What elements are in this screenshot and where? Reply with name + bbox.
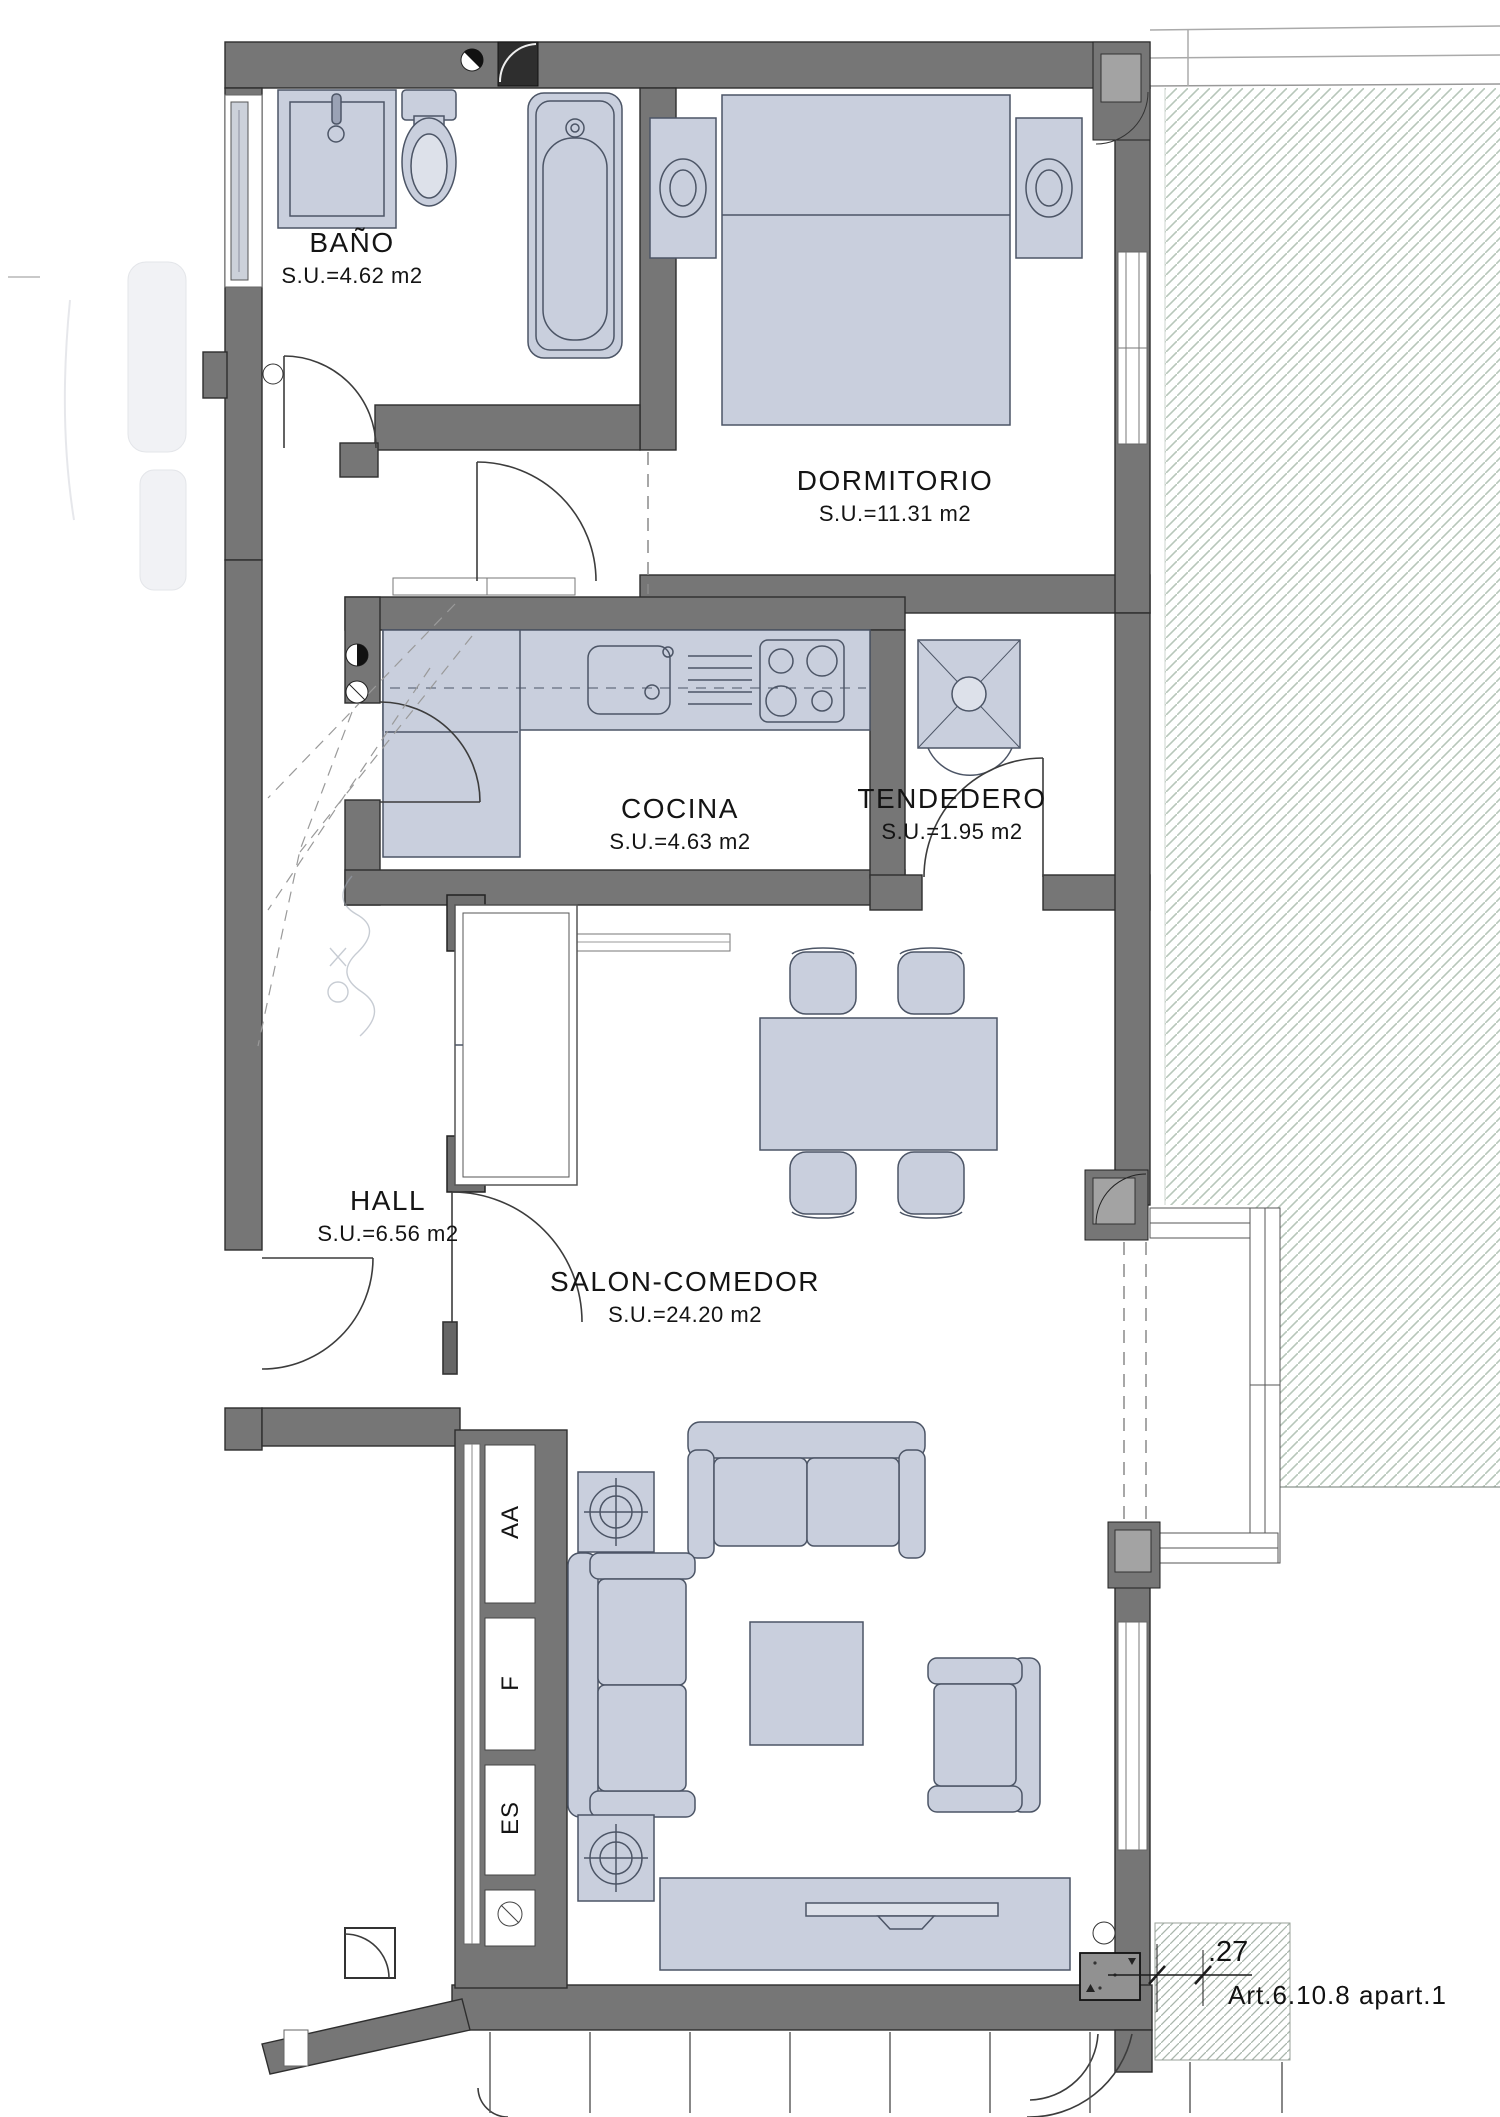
room-name: COCINA [609, 793, 750, 825]
floor-plan-drawing [0, 0, 1500, 2117]
room-area: S.U.=6.56 m2 [317, 1221, 458, 1247]
pivot-box-top-right [1093, 42, 1150, 144]
room-name: DORMITORIO [797, 465, 993, 497]
dining-table [760, 1018, 997, 1150]
bed [722, 95, 1010, 425]
nightstand-left [650, 118, 716, 258]
bathroom-sink-icon [278, 90, 396, 228]
bathtub-icon [528, 93, 622, 358]
armchair [928, 1658, 1040, 1812]
regulation-reference: Art.6.10.8 apart.1 [1228, 1980, 1447, 2011]
washing-machine-icon [918, 640, 1020, 775]
hall-wardrobe [447, 895, 577, 1192]
room-label-salon-comedor: SALON-COMEDOR S.U.=24.20 m2 [550, 1266, 820, 1328]
column-marker-left [263, 364, 283, 384]
balcony-bay-window [1148, 1205, 1280, 1565]
room-label-dormitorio: DORMITORIO S.U.=11.31 m2 [797, 465, 993, 527]
side-table-top [578, 1472, 654, 1552]
door-entrance [262, 1258, 373, 1369]
door-exterior-bottom [478, 2034, 1132, 2117]
toilet-icon [402, 90, 456, 206]
door-closer-box [345, 1928, 395, 1978]
floor-plan-canvas: BAÑO S.U.=4.62 m2 DORMITORIO S.U.=11.31 … [0, 0, 1500, 2117]
room-name: SALON-COMEDOR [550, 1266, 820, 1298]
sofa-left [568, 1553, 695, 1817]
coffee-table [750, 1622, 863, 1745]
pivot-box-bay-top [1085, 1170, 1148, 1240]
adjacent-unit-ghost-shapes [8, 262, 186, 590]
room-label-cocina: COCINA S.U.=4.63 m2 [609, 793, 750, 855]
shaft-label-aa: AA [497, 1505, 525, 1539]
furniture [278, 90, 1082, 1970]
door-landing [477, 462, 596, 581]
room-name: HALL [317, 1185, 458, 1217]
room-label-bano: BAÑO S.U.=4.62 m2 [281, 227, 422, 289]
tv-sideboard [660, 1878, 1070, 1970]
room-area: S.U.=24.20 m2 [550, 1302, 820, 1328]
room-label-hall: HALL S.U.=6.56 m2 [317, 1185, 458, 1247]
pivot-box-bay-bottom [1108, 1522, 1160, 1588]
sofa-top [688, 1422, 925, 1558]
room-name: TENDEDERO [857, 783, 1046, 815]
dimension-value: .27 [1208, 1936, 1248, 1969]
nightstand-right [1016, 118, 1082, 258]
column-marker-bottom-right [1093, 1922, 1115, 1944]
concrete-pillar [1080, 1953, 1140, 2000]
room-area: S.U.=11.31 m2 [797, 501, 993, 527]
room-name: BAÑO [281, 227, 422, 259]
door-bathroom [284, 356, 376, 448]
tv-icon [806, 1903, 998, 1916]
room-area: S.U.=4.62 m2 [281, 263, 422, 289]
room-area: S.U.=1.95 m2 [857, 819, 1046, 845]
shaft-label-f: F [497, 1675, 525, 1691]
room-area: S.U.=4.63 m2 [609, 829, 750, 855]
side-table-bottom [578, 1815, 654, 1901]
shaft-label-es: ES [497, 1801, 525, 1835]
room-label-tendedero: TENDEDERO S.U.=1.95 m2 [857, 783, 1046, 845]
